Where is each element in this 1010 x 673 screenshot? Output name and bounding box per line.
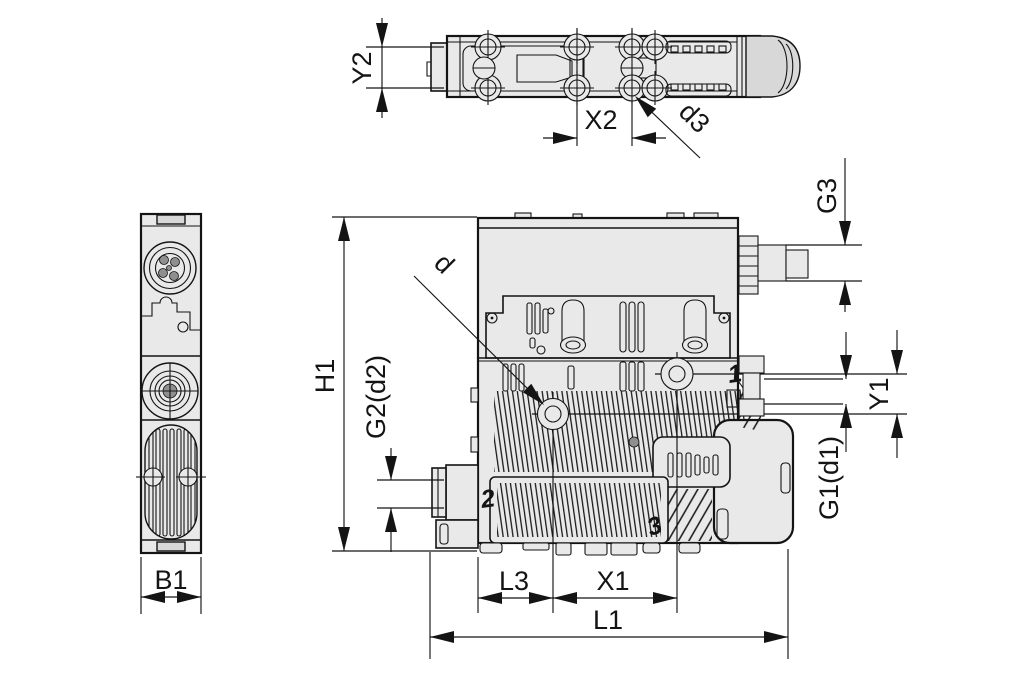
dim-b1: B1	[141, 557, 201, 614]
label-y1: Y1	[864, 377, 894, 410]
label-d: d	[428, 248, 460, 280]
dim-l3: L3	[478, 566, 553, 604]
dim-l1: L1	[430, 605, 788, 643]
lower-fins	[497, 483, 661, 537]
label-h1: H1	[310, 359, 340, 394]
side-view: B1	[136, 214, 206, 614]
dim-y1: Y1	[864, 330, 903, 458]
label-g1d1: G1(d1)	[814, 436, 844, 520]
dim-x1: X1	[553, 566, 677, 604]
label-y2: Y2	[347, 51, 377, 84]
leader-d3: d3	[631, 92, 716, 158]
dim-g3: G3	[786, 158, 862, 312]
side-port-knob	[142, 363, 198, 419]
label-x1: X1	[596, 566, 629, 596]
technical-drawing-page: Y2 X2 d3	[0, 0, 1010, 673]
label-x2: X2	[584, 105, 617, 135]
port2-block	[432, 465, 478, 548]
mounting-feet	[480, 543, 700, 555]
label-l1: L1	[593, 605, 623, 635]
front-view: 1 2 3 d H1 G2(d2)	[310, 158, 907, 659]
label-d3: d3	[673, 96, 715, 138]
top-view-left-cap	[431, 43, 447, 91]
dim-g2d2: G2(d2)	[361, 355, 444, 552]
top-view-end-cap	[746, 36, 800, 97]
label-g2d2: G2(d2)	[361, 355, 391, 439]
top-view: Y2 X2 d3	[347, 18, 800, 158]
dimensional-drawing: Y2 X2 d3	[0, 0, 1010, 673]
label-b1: B1	[154, 565, 187, 595]
label-g3: G3	[812, 178, 842, 214]
dim-y2: Y2	[347, 18, 444, 118]
label-l3: L3	[499, 566, 529, 596]
